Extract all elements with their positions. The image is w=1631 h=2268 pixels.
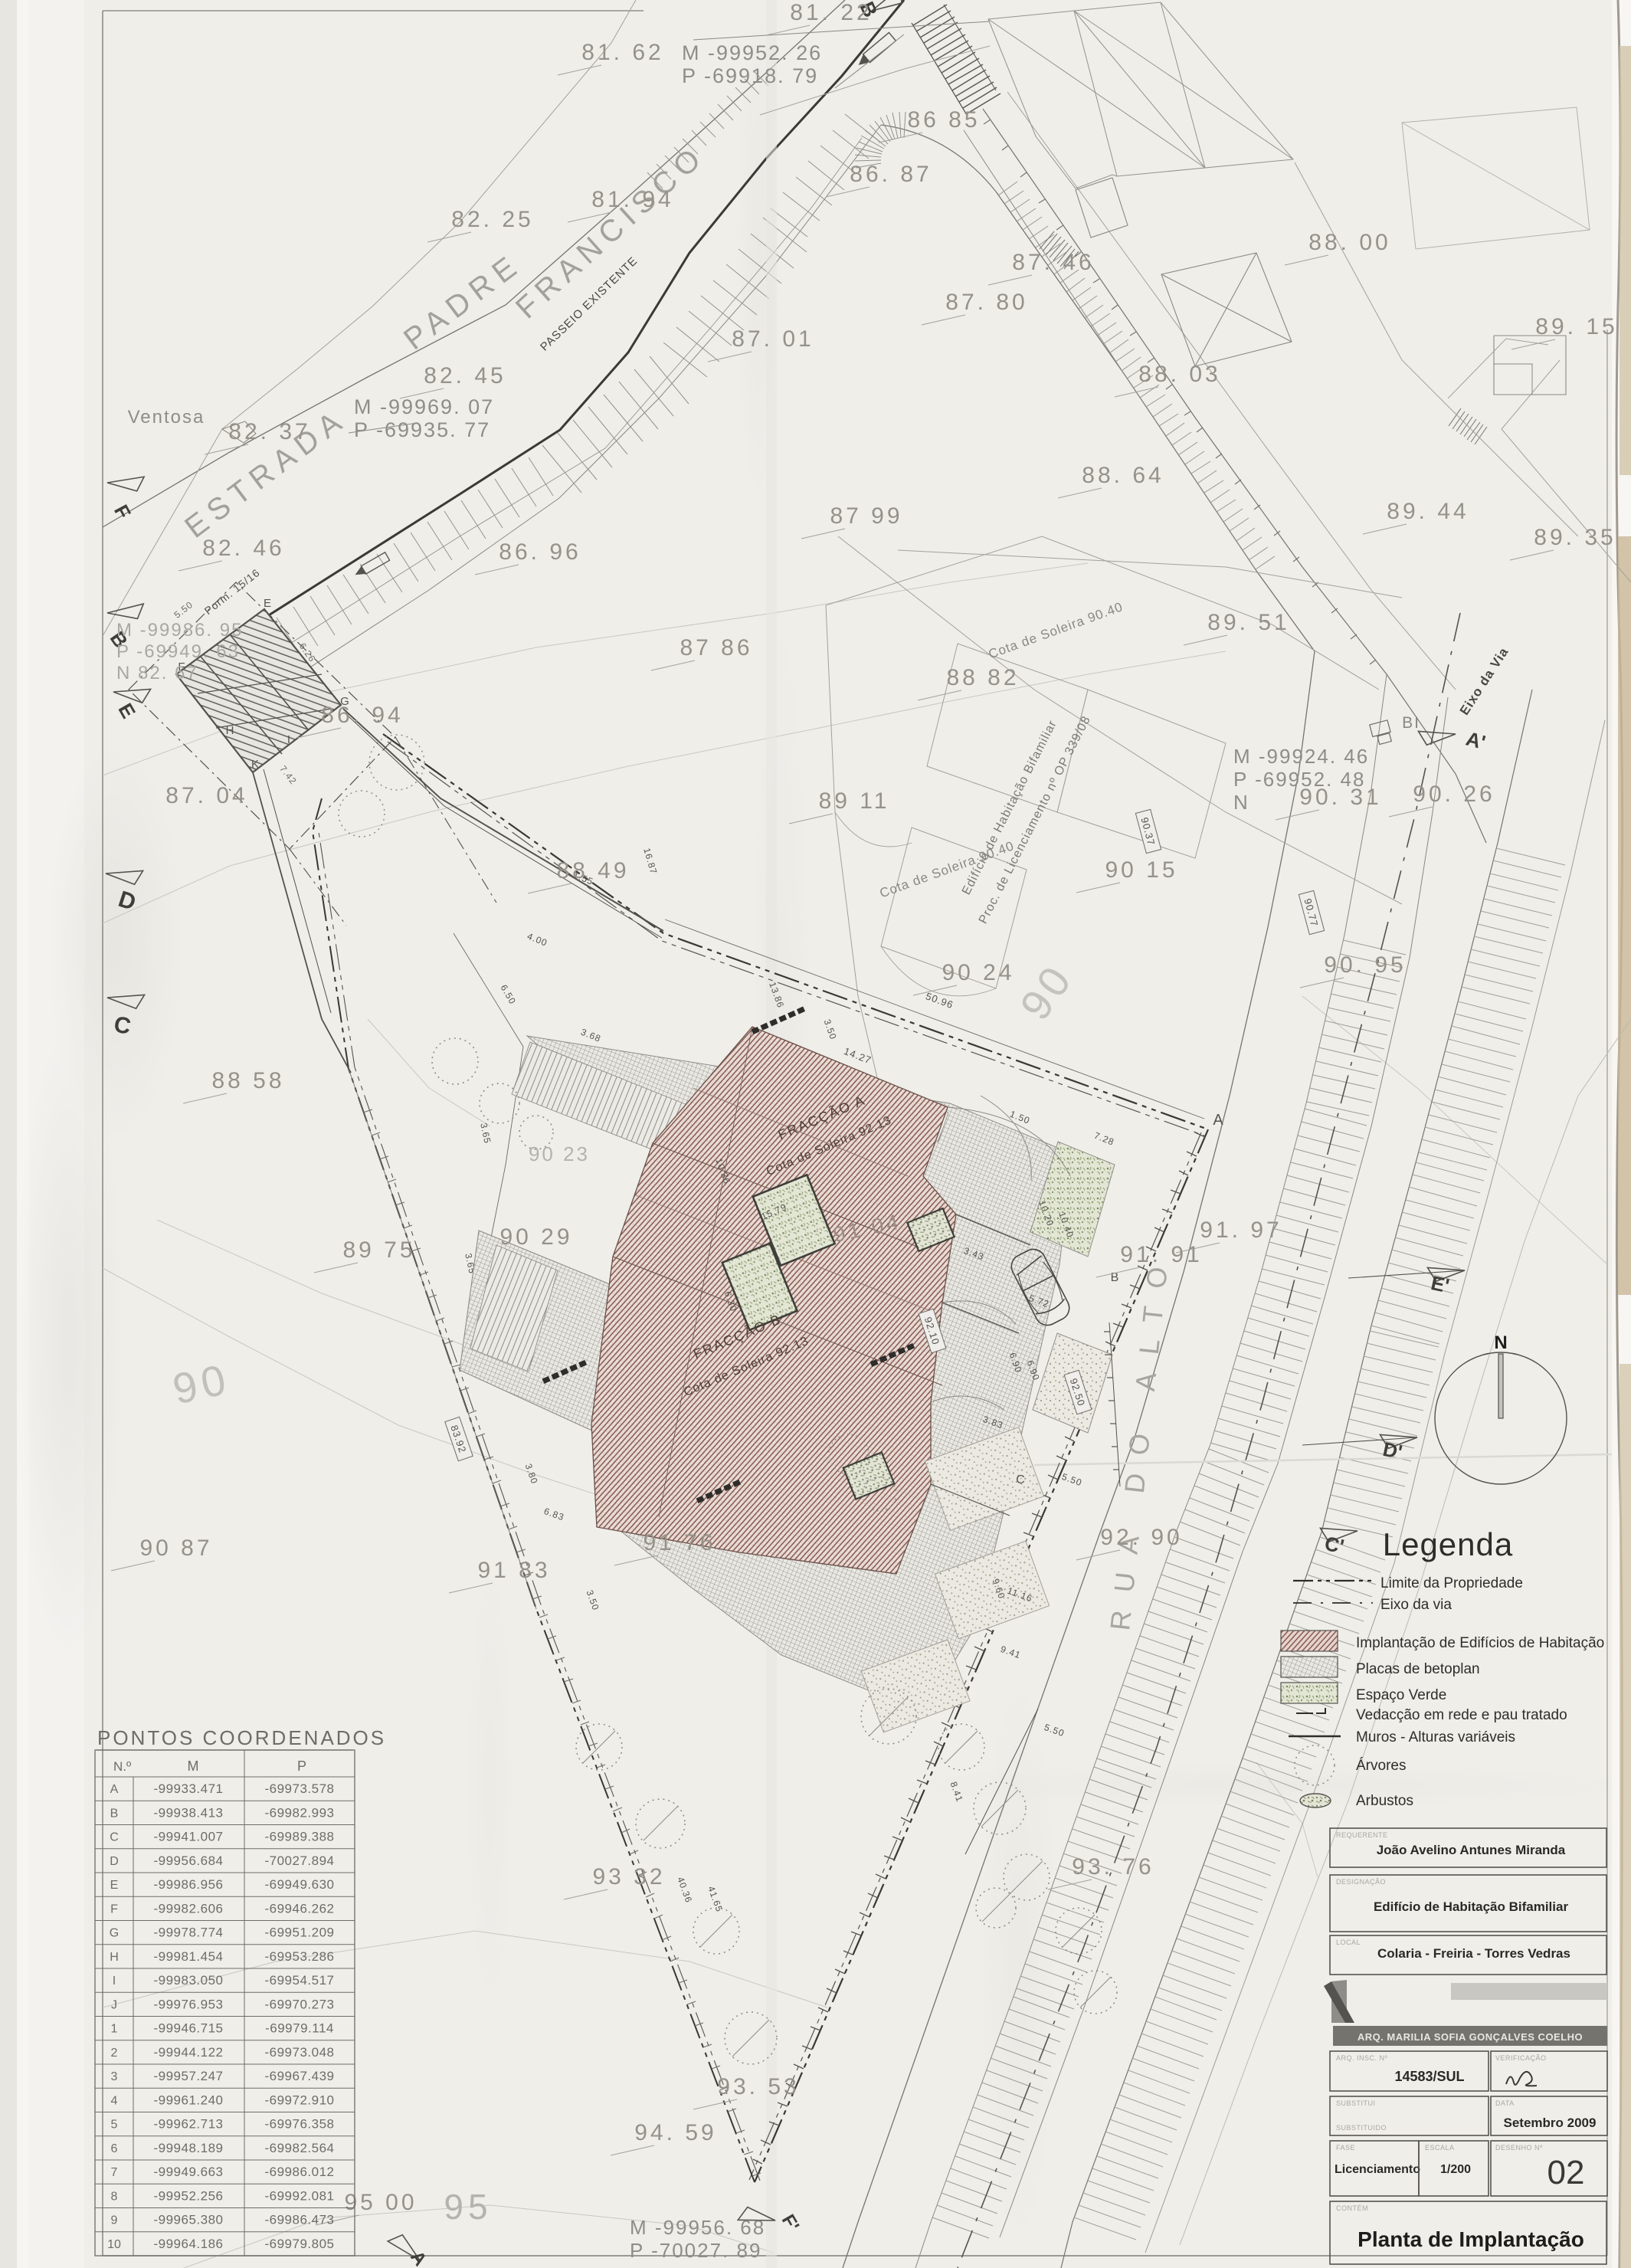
svg-text:Planta de Implantação: Planta de Implantação: [1358, 2227, 1584, 2251]
svg-text:M -99986. 95: M -99986. 95: [116, 620, 243, 641]
svg-text:J: J: [111, 1998, 117, 2011]
svg-text:-99978.774: -99978.774: [153, 1926, 223, 1940]
svg-text:4: 4: [111, 2094, 118, 2107]
svg-text:PONTOS COORDENADOS: PONTOS COORDENADOS: [97, 1726, 386, 1749]
svg-text:Árvores: Árvores: [1356, 1758, 1406, 1774]
svg-text:-69982.564: -69982.564: [264, 2141, 334, 2155]
svg-text:-69973.578: -69973.578: [264, 1781, 334, 1796]
svg-text:DATA: DATA: [1495, 2099, 1515, 2107]
svg-text:8: 8: [111, 2190, 118, 2203]
svg-text:FASE: FASE: [1336, 2144, 1355, 2152]
svg-text:-69986.473: -69986.473: [264, 2213, 334, 2227]
svg-text:H: H: [110, 1951, 119, 1964]
svg-text:-99986.956: -99986.956: [153, 1877, 223, 1892]
svg-text:E: E: [264, 597, 271, 610]
svg-text:87. 04: 87. 04: [165, 783, 247, 808]
svg-text:88 49: 88 49: [556, 858, 629, 883]
svg-text:91. 91: 91. 91: [1120, 1242, 1202, 1267]
svg-text:M: M: [188, 1758, 199, 1774]
svg-text:82. 46: 82. 46: [202, 536, 284, 561]
svg-text:-99948.189: -99948.189: [153, 2141, 223, 2155]
svg-text:9: 9: [111, 2214, 118, 2227]
svg-text:M -99952. 26: M -99952. 26: [682, 41, 822, 64]
svg-text:82. 25: 82. 25: [451, 207, 533, 232]
svg-text:90. 26: 90. 26: [1413, 782, 1495, 807]
svg-text:F: F: [110, 1903, 118, 1916]
svg-text:-99952.256: -99952.256: [153, 2188, 223, 2203]
svg-text:86. 96: 86. 96: [499, 539, 581, 565]
svg-text:-69979.114: -69979.114: [265, 2021, 334, 2036]
svg-text:88. 03: 88. 03: [1138, 362, 1220, 387]
svg-text:-70027.894: -70027.894: [264, 1853, 334, 1868]
svg-text:Legenda: Legenda: [1383, 1526, 1514, 1562]
svg-text:-99944.122: -99944.122: [153, 2045, 223, 2060]
svg-text:C: C: [110, 1831, 119, 1844]
svg-text:91 76: 91 76: [643, 1530, 716, 1555]
svg-text:-99965.380: -99965.380: [153, 2213, 223, 2227]
svg-text:-69979.805: -69979.805: [264, 2237, 334, 2251]
svg-text:89 75: 89 75: [342, 1237, 415, 1263]
svg-text:-69970.273: -69970.273: [264, 1997, 334, 2011]
svg-text:N.º: N.º: [113, 1759, 131, 1774]
svg-text:Colaria - Freiria - Torres Ved: Colaria - Freiria - Torres Vedras: [1377, 1946, 1570, 1961]
svg-text:SUBSTITUIDO: SUBSTITUIDO: [1336, 2124, 1387, 2132]
svg-text:C: C: [1016, 1473, 1025, 1486]
svg-text:M -99969. 07: M -99969. 07: [354, 395, 494, 418]
svg-text:81. 62: 81. 62: [581, 40, 663, 65]
svg-text:K: K: [251, 758, 259, 771]
svg-text:-99981.454: -99981.454: [153, 1949, 223, 1964]
svg-text:89. 35: 89. 35: [1534, 525, 1616, 550]
svg-text:Placas de betoplan: Placas de betoplan: [1356, 1661, 1480, 1677]
svg-text:-69976.358: -69976.358: [264, 2117, 334, 2132]
svg-text:Edifício de Habitação Bifamili: Edifício de Habitação Bifamiliar: [1374, 1899, 1569, 1914]
svg-text:7: 7: [111, 2166, 118, 2179]
svg-text:-99949.663: -99949.663: [153, 2165, 223, 2179]
svg-text:SUBSTITUI: SUBSTITUI: [1336, 2099, 1376, 2107]
svg-text:-69992.081: -69992.081: [264, 2188, 334, 2203]
svg-text:2: 2: [111, 2047, 118, 2060]
svg-text:-99983.050: -99983.050: [153, 1973, 223, 1988]
svg-text:-99957.247: -99957.247: [153, 2069, 223, 2083]
svg-text:5: 5: [111, 2119, 118, 2132]
svg-text:-69989.388: -69989.388: [264, 1830, 334, 1844]
svg-text:1/200: 1/200: [1440, 2163, 1471, 2176]
svg-text:I: I: [113, 1975, 116, 1988]
svg-text:-99961.240: -99961.240: [153, 2093, 223, 2107]
svg-text:-69949.630: -69949.630: [264, 1877, 334, 1892]
svg-text:95: 95: [444, 2187, 492, 2227]
svg-text:Eixo da via: Eixo da via: [1380, 1597, 1452, 1613]
svg-text:90 24: 90 24: [942, 960, 1014, 985]
svg-text:-99956.684: -99956.684: [153, 1853, 223, 1868]
svg-text:N: N: [1494, 1332, 1507, 1353]
svg-text:-99976.953: -99976.953: [153, 1997, 223, 2011]
svg-text:ARQ. INSC. Nº: ARQ. INSC. Nº: [1336, 2054, 1388, 2062]
svg-text:89 11: 89 11: [819, 788, 890, 814]
svg-text:1: 1: [111, 2023, 118, 2036]
svg-text:M -99956. 68: M -99956. 68: [630, 2216, 765, 2239]
svg-text:DESENHO Nº: DESENHO Nº: [1495, 2144, 1543, 2152]
svg-text:95 00: 95 00: [344, 2190, 417, 2215]
svg-text:D: D: [110, 1855, 119, 1868]
svg-text:94. 59: 94. 59: [634, 2120, 716, 2145]
svg-text:86 85: 86 85: [907, 107, 980, 133]
svg-text:89. 44: 89. 44: [1387, 499, 1469, 524]
svg-text:-69951.209: -69951.209: [264, 1926, 334, 1940]
svg-text:P -69918. 79: P -69918. 79: [682, 64, 818, 87]
svg-text:02: 02: [1547, 2154, 1585, 2191]
svg-text:10: 10: [107, 2238, 121, 2251]
svg-text:João Avelino Antunes Miranda: João Avelino Antunes Miranda: [1377, 1843, 1566, 1857]
svg-text:M -99924. 46: M -99924. 46: [1233, 745, 1369, 768]
svg-text:-69986.012: -69986.012: [264, 2165, 334, 2179]
svg-text:-99982.606: -99982.606: [153, 1901, 223, 1916]
svg-text:N: N: [1233, 791, 1249, 814]
svg-text:86. 94: 86. 94: [321, 703, 403, 728]
svg-text:90 15: 90 15: [1105, 857, 1177, 883]
svg-text:Licenciamento: Licenciamento: [1335, 2163, 1420, 2176]
svg-text:P -69952. 48: P -69952. 48: [1233, 768, 1365, 791]
svg-text:89. 51: 89. 51: [1207, 610, 1289, 635]
svg-text:88. 64: 88. 64: [1082, 463, 1164, 488]
svg-text:88 82: 88 82: [946, 665, 1019, 690]
svg-text:87. 80: 87. 80: [945, 290, 1027, 315]
svg-text:-99946.715: -99946.715: [153, 2021, 223, 2036]
svg-text:-99941.007: -99941.007: [153, 1830, 223, 1844]
svg-text:82. 37: 82. 37: [228, 419, 310, 444]
svg-text:G: G: [110, 1927, 119, 1940]
svg-text:-69967.439: -69967.439: [264, 2069, 334, 2083]
svg-text:Implantação de Edifícios de Ha: Implantação de Edifícios de Habitação: [1356, 1635, 1604, 1651]
svg-text:ARQ. MARILIA SOFIA GONÇALVES C: ARQ. MARILIA SOFIA GONÇALVES COELHO: [1358, 2031, 1583, 2043]
svg-text:93 32: 93 32: [592, 1864, 665, 1889]
svg-text:P -69949. 63: P -69949. 63: [116, 641, 240, 662]
svg-text:3: 3: [111, 2070, 118, 2083]
svg-text:DESIGNAÇÃO: DESIGNAÇÃO: [1336, 1878, 1386, 1886]
svg-text:93. 76: 93. 76: [1072, 1854, 1154, 1880]
svg-text:90. 95: 90. 95: [1324, 952, 1406, 978]
svg-text:Ventosa: Ventosa: [128, 407, 205, 428]
svg-text:90 23: 90 23: [529, 1142, 590, 1165]
svg-text:ESCALA: ESCALA: [1425, 2144, 1455, 2152]
svg-text:Setembro 2009: Setembro 2009: [1504, 2116, 1597, 2130]
svg-text:REQUERENTE: REQUERENTE: [1336, 1831, 1388, 1839]
svg-text:H: H: [226, 724, 234, 737]
svg-text:86. 87: 86. 87: [850, 162, 932, 187]
svg-text:I: I: [287, 733, 290, 746]
svg-text:88 58: 88 58: [211, 1068, 284, 1093]
svg-text:87. 01: 87. 01: [732, 326, 814, 352]
svg-text:Arbustos: Arbustos: [1356, 1793, 1413, 1809]
svg-text:-99962.713: -99962.713: [153, 2117, 223, 2132]
svg-text:P: P: [297, 1758, 306, 1774]
svg-text:81. 22: 81. 22: [790, 0, 872, 25]
svg-text:-99964.186: -99964.186: [153, 2237, 223, 2251]
svg-text:14583/SUL: 14583/SUL: [1394, 2069, 1464, 2084]
svg-text:-69973.048: -69973.048: [264, 2045, 334, 2060]
svg-text:-69982.993: -69982.993: [264, 1805, 334, 1820]
svg-text:Espaço Verde: Espaço Verde: [1356, 1687, 1446, 1703]
svg-text:CONTÉM: CONTÉM: [1336, 2204, 1368, 2212]
svg-text:BI: BI: [1402, 714, 1420, 732]
svg-text:90 29: 90 29: [499, 1224, 572, 1250]
svg-text:-69946.262: -69946.262: [264, 1901, 334, 1916]
svg-text:82. 45: 82. 45: [424, 363, 506, 388]
svg-text:90 87: 90 87: [139, 1535, 212, 1561]
svg-text:93. 53: 93. 53: [717, 2074, 799, 2099]
svg-text:E: E: [110, 1879, 119, 1892]
svg-text:VERIFICAÇÃO: VERIFICAÇÃO: [1495, 2054, 1547, 2062]
svg-text:91. 97: 91. 97: [1200, 1218, 1282, 1243]
svg-text:P -70027. 89: P -70027. 89: [630, 2239, 761, 2262]
svg-text:-99938.413: -99938.413: [153, 1805, 223, 1820]
svg-text:B: B: [110, 1807, 119, 1820]
svg-text:91 83: 91 83: [477, 1558, 550, 1583]
svg-text:87 99: 87 99: [830, 503, 902, 529]
svg-text:-69953.286: -69953.286: [264, 1949, 334, 1964]
svg-text:87 86: 87 86: [680, 635, 752, 660]
svg-text:Vedacção em rede e pau tratado: Vedacção em rede e pau tratado: [1356, 1707, 1567, 1723]
svg-text:Limite da Propriedade: Limite da Propriedade: [1380, 1575, 1523, 1591]
svg-text:P -69935. 77: P -69935. 77: [354, 418, 490, 441]
svg-text:92. 90: 92. 90: [1100, 1525, 1182, 1550]
svg-text:89. 15: 89. 15: [1535, 314, 1617, 339]
svg-text:88. 00: 88. 00: [1308, 230, 1390, 255]
svg-text:Muros - Alturas variáveis: Muros - Alturas variáveis: [1356, 1729, 1515, 1745]
svg-text:6: 6: [111, 2142, 118, 2155]
svg-text:N 82. 67: N 82. 67: [116, 663, 198, 683]
svg-text:A: A: [1213, 1112, 1223, 1129]
svg-text:A: A: [110, 1783, 119, 1796]
svg-text:-69972.910: -69972.910: [264, 2093, 334, 2107]
svg-text:81. 94: 81. 94: [591, 187, 673, 212]
svg-text:-69954.517: -69954.517: [264, 1973, 334, 1988]
svg-text:LOCAL: LOCAL: [1336, 1939, 1361, 1946]
svg-text:-99933.471: -99933.471: [153, 1781, 223, 1796]
svg-text:87. 46: 87. 46: [1012, 250, 1094, 275]
